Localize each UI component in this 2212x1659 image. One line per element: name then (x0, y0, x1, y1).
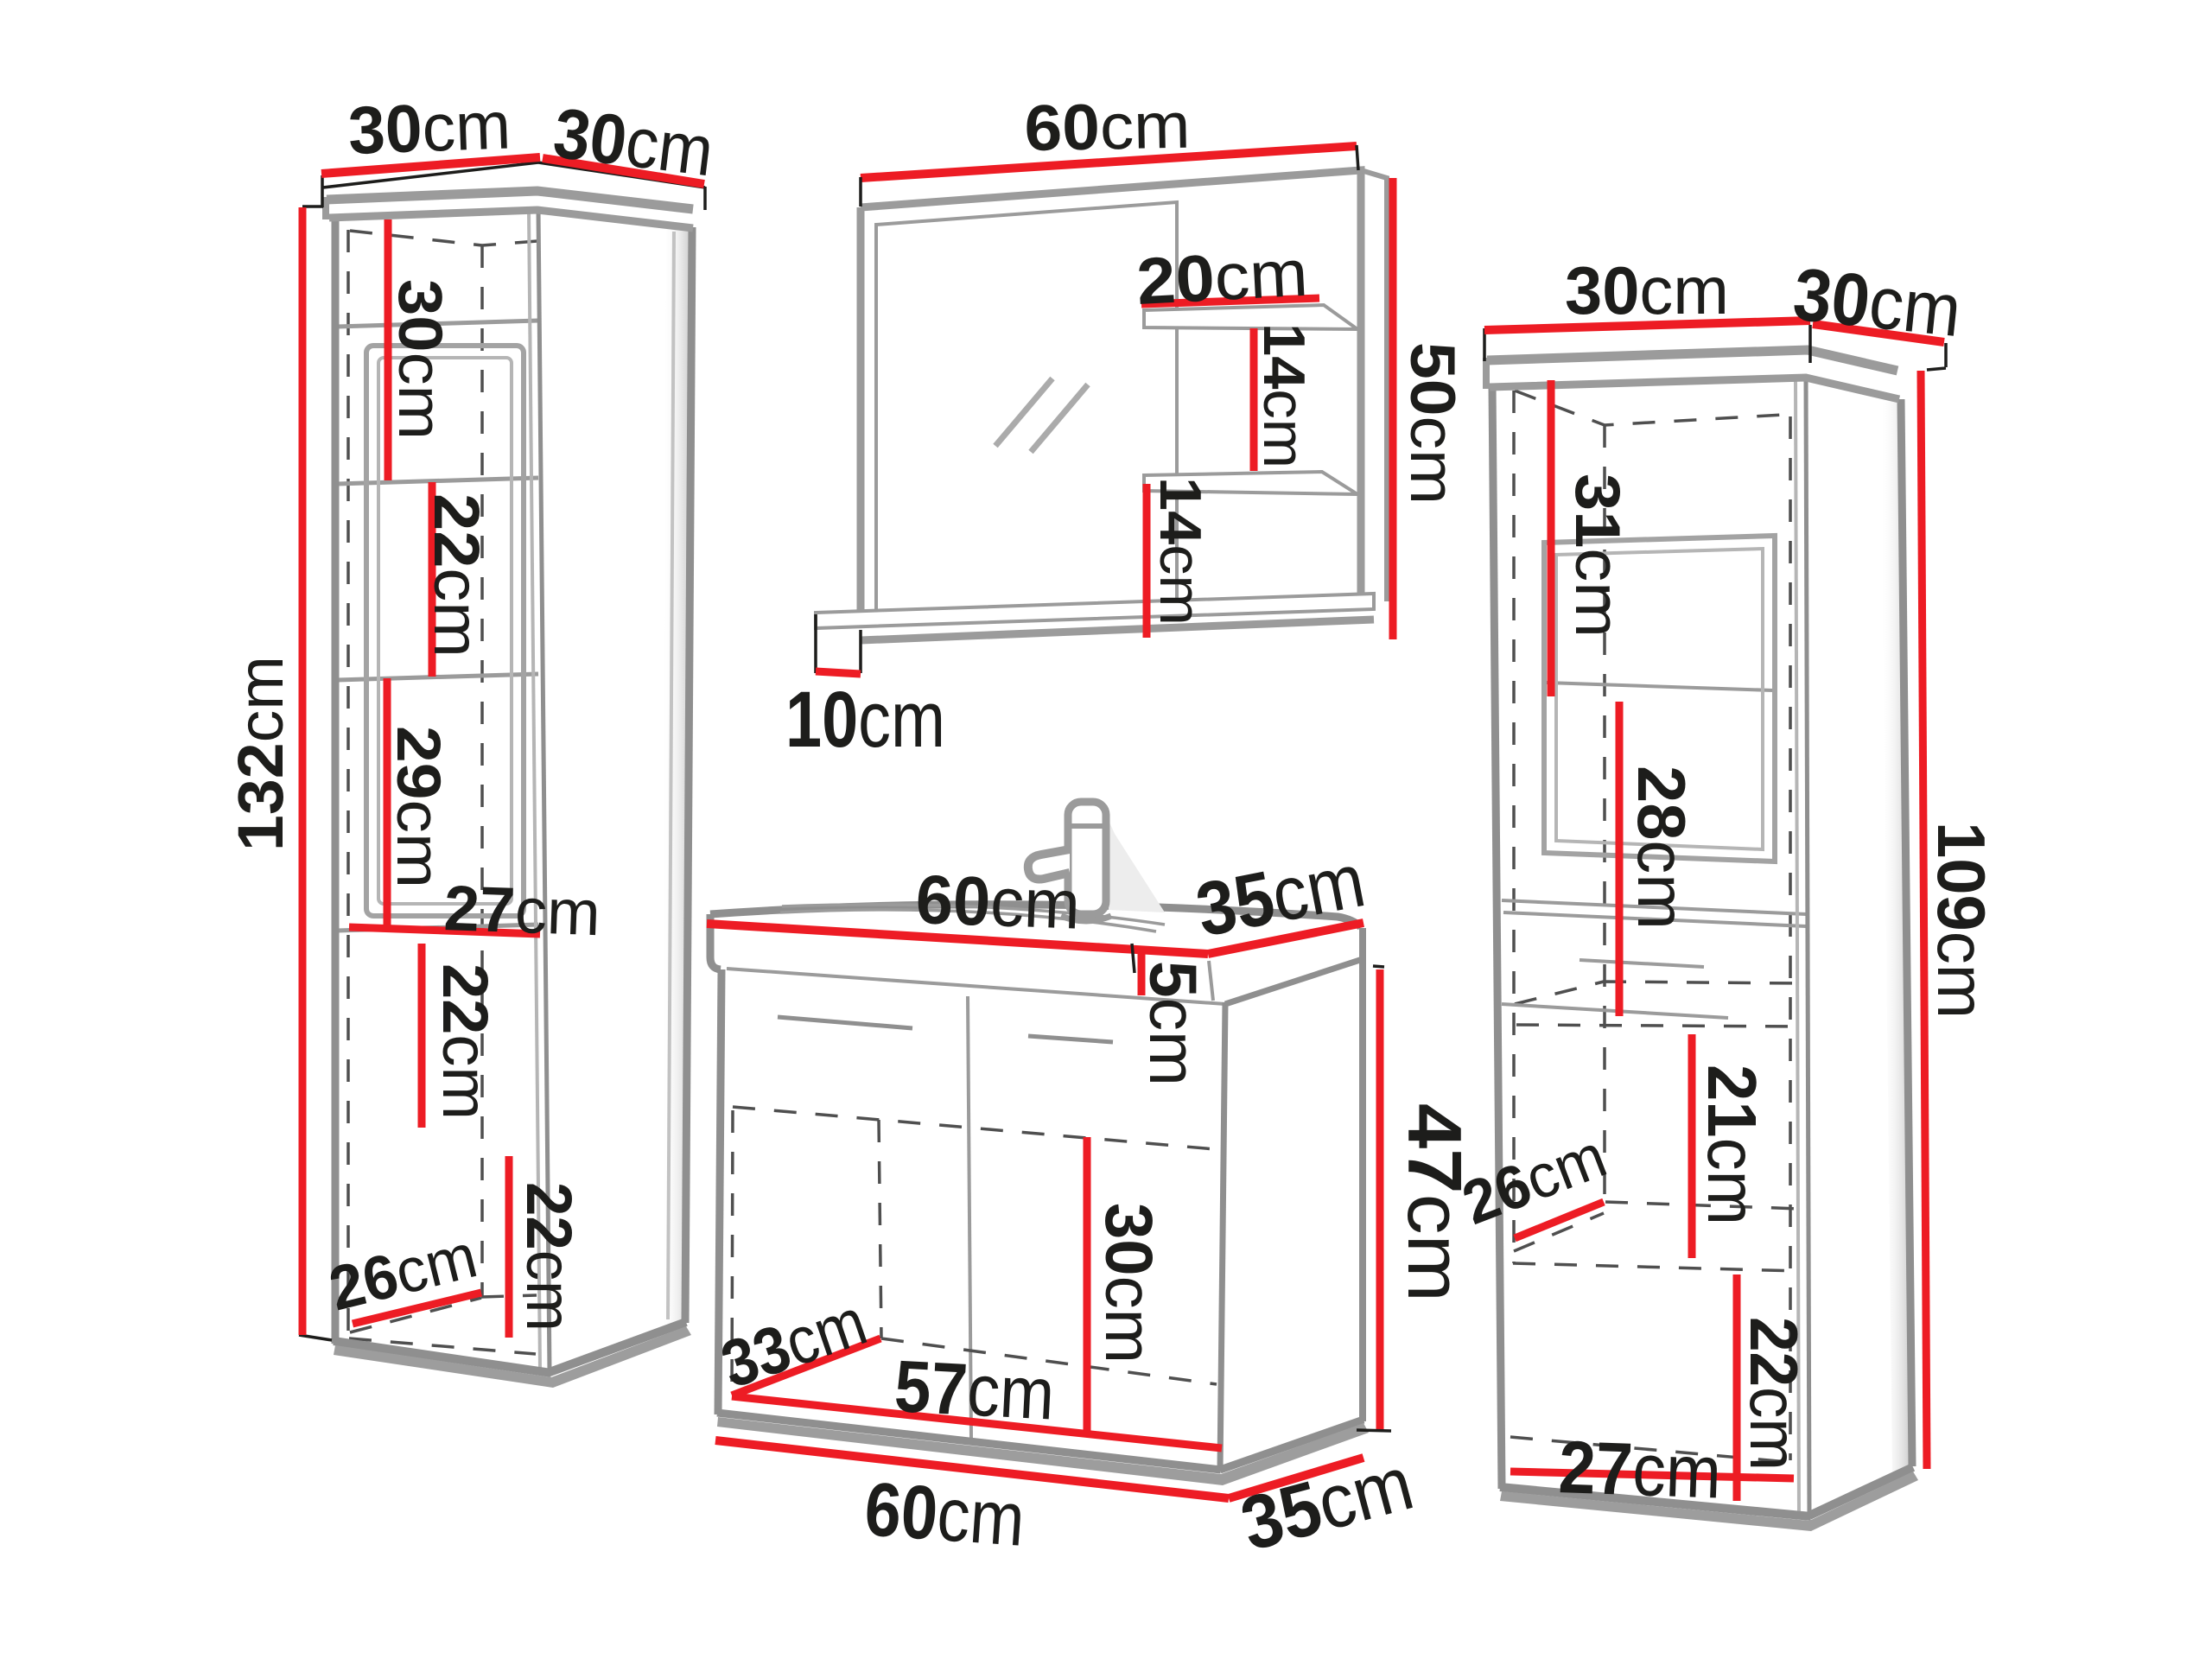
svg-text:30cm: 30cm (1789, 252, 1965, 353)
svg-text:14cm: 14cm (1251, 323, 1317, 468)
svg-text:29cm: 29cm (384, 726, 452, 888)
svg-text:132cm: 132cm (225, 656, 296, 851)
svg-text:60cm: 60cm (1024, 89, 1191, 164)
svg-text:50cm: 50cm (1397, 342, 1467, 505)
svg-text:30cm: 30cm (1091, 1203, 1166, 1363)
svg-text:31cm: 31cm (1562, 474, 1632, 638)
svg-text:30cm: 30cm (385, 279, 454, 440)
svg-text:5cm: 5cm (1135, 961, 1210, 1086)
svg-text:28cm: 28cm (1624, 766, 1700, 930)
svg-text:27cm: 27cm (442, 872, 601, 949)
svg-text:22cm: 22cm (429, 963, 501, 1120)
svg-text:109cm: 109cm (1923, 822, 1999, 1019)
svg-text:60cm: 60cm (862, 1465, 1027, 1562)
svg-text:14cm: 14cm (1147, 477, 1213, 626)
svg-text:22cm: 22cm (513, 1182, 585, 1332)
svg-text:21cm: 21cm (1694, 1065, 1770, 1225)
svg-text:10cm: 10cm (785, 676, 945, 764)
svg-text:22cm: 22cm (1736, 1317, 1812, 1471)
svg-text:20cm: 20cm (1135, 237, 1309, 319)
svg-text:60cm: 60cm (914, 861, 1081, 944)
svg-text:57cm: 57cm (893, 1345, 1057, 1436)
svg-text:27cm: 27cm (1557, 1426, 1722, 1515)
svg-text:30cm: 30cm (1565, 252, 1729, 328)
svg-text:30cm: 30cm (347, 86, 512, 168)
svg-text:22cm: 22cm (421, 493, 493, 658)
